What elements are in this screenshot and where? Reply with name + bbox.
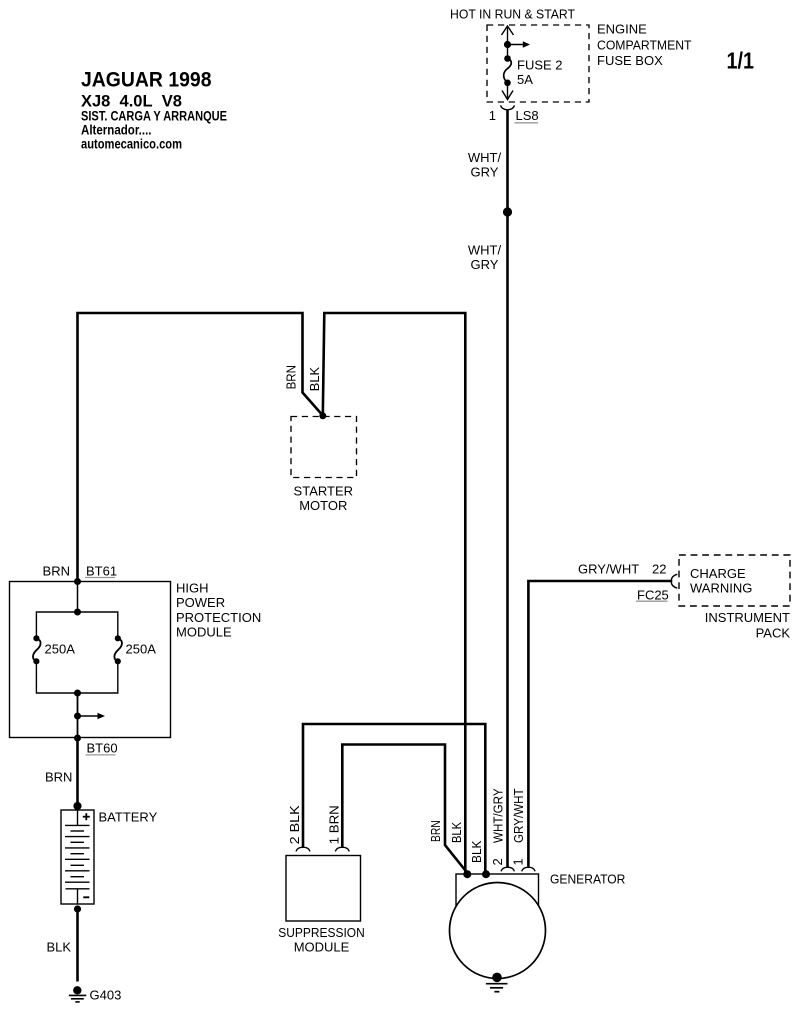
- svg-text:LS8: LS8: [516, 108, 539, 123]
- svg-text:BLK: BLK: [307, 367, 322, 392]
- svg-text:MOTOR: MOTOR: [299, 498, 347, 513]
- svg-text:BLK: BLK: [469, 840, 484, 863]
- svg-text:BT61: BT61: [86, 564, 117, 579]
- svg-text:PACK: PACK: [756, 625, 791, 640]
- svg-text:WHT/GRY: WHT/GRY: [491, 788, 506, 843]
- svg-text:BRN: BRN: [45, 770, 72, 785]
- svg-text:POWER: POWER: [176, 595, 225, 610]
- svg-text:22: 22: [652, 561, 666, 576]
- svg-text:FUSE BOX: FUSE BOX: [597, 53, 663, 68]
- svg-text:ENGINE: ENGINE: [597, 22, 647, 37]
- svg-text:WHT/: WHT/: [468, 150, 502, 165]
- svg-text:1: 1: [511, 858, 526, 865]
- svg-text:5A: 5A: [517, 72, 533, 87]
- svg-text:MODULE: MODULE: [176, 625, 232, 640]
- svg-text:250A: 250A: [126, 642, 157, 657]
- svg-text:GRY/WHT: GRY/WHT: [511, 788, 526, 843]
- svg-text:1 BRN: 1 BRN: [326, 805, 341, 844]
- svg-text:JAGUAR 1998: JAGUAR 1998: [81, 69, 212, 92]
- svg-text:GRY/WHT: GRY/WHT: [578, 561, 639, 576]
- svg-text:BRN: BRN: [428, 820, 443, 842]
- svg-text:BLK: BLK: [449, 822, 464, 843]
- svg-text:GENERATOR: GENERATOR: [550, 871, 625, 886]
- svg-text:BRN: BRN: [284, 365, 299, 389]
- svg-text:STARTER: STARTER: [294, 484, 353, 499]
- svg-text:G403: G403: [90, 988, 122, 1003]
- svg-text:1/1: 1/1: [727, 48, 755, 74]
- svg-text:FC25: FC25: [637, 587, 669, 602]
- svg-text:BRN: BRN: [43, 564, 70, 579]
- svg-text:BLK: BLK: [47, 940, 72, 955]
- svg-text:Alternador....: Alternador....: [81, 123, 152, 138]
- svg-text:1: 1: [489, 108, 496, 123]
- svg-text:PROTECTION: PROTECTION: [176, 610, 261, 625]
- svg-text:BATTERY: BATTERY: [99, 810, 158, 825]
- svg-text:2: 2: [490, 858, 505, 865]
- svg-text:250A: 250A: [45, 642, 76, 657]
- svg-text:GRY: GRY: [471, 165, 499, 180]
- svg-text:GRY: GRY: [471, 257, 499, 272]
- svg-text:FUSE 2: FUSE 2: [517, 58, 563, 73]
- svg-text:BT60: BT60: [87, 740, 118, 755]
- svg-text:WARNING: WARNING: [690, 581, 752, 596]
- svg-text:HOT IN RUN & START: HOT IN RUN & START: [450, 7, 575, 22]
- svg-text:2 BLK: 2 BLK: [287, 805, 302, 845]
- svg-text:INSTRUMENT: INSTRUMENT: [705, 610, 790, 625]
- svg-text:WHT/: WHT/: [468, 243, 502, 258]
- svg-text:automecanico.com: automecanico.com: [81, 137, 182, 152]
- svg-text:MODULE: MODULE: [294, 940, 350, 955]
- svg-text:COMPARTMENT: COMPARTMENT: [597, 38, 692, 53]
- svg-text:HIGH: HIGH: [176, 581, 209, 596]
- svg-text:SIST. CARGA Y ARRANQUE: SIST. CARGA Y ARRANQUE: [81, 109, 227, 124]
- svg-text:CHARGE: CHARGE: [690, 566, 746, 581]
- svg-text:SUPPRESSION: SUPPRESSION: [278, 925, 365, 940]
